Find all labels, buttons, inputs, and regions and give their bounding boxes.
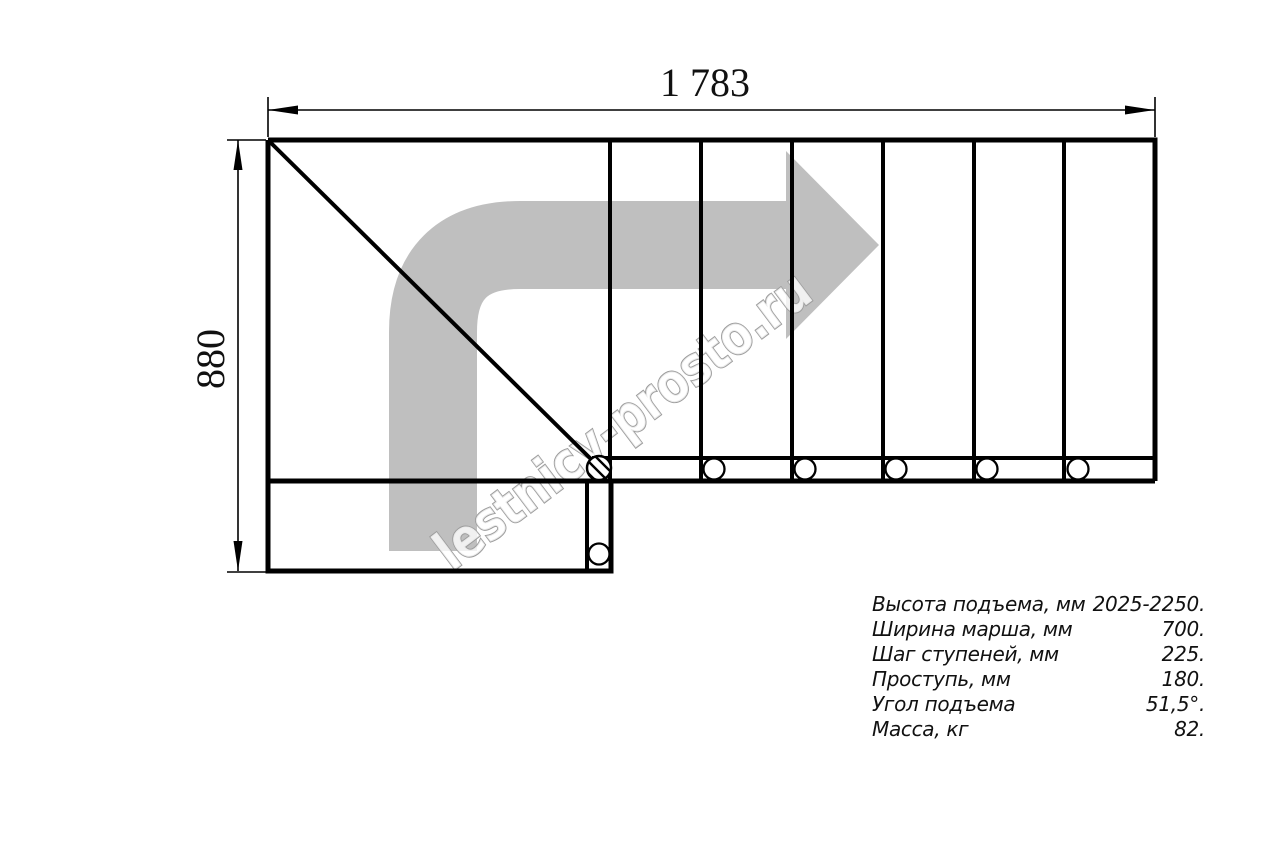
baluster-circle bbox=[886, 459, 907, 480]
specs-table: Высота подъема, мм 2025-2250. Ширина мар… bbox=[872, 592, 1205, 742]
baluster-circle bbox=[589, 544, 610, 565]
spec-row: Проступь, мм 180. bbox=[872, 667, 1205, 692]
spec-label: Высота подъема, мм bbox=[872, 592, 1085, 617]
spec-value: 700. bbox=[1162, 617, 1205, 642]
baluster-circle bbox=[704, 459, 725, 480]
spec-value: 82. bbox=[1174, 717, 1205, 742]
spec-row: Угол подъема 51,5°. bbox=[872, 692, 1205, 717]
baluster-circle bbox=[1068, 459, 1089, 480]
spec-value: 2025-2250. bbox=[1093, 592, 1205, 617]
watermark-text: lestnicy-prosto.ru bbox=[422, 258, 823, 582]
dim-arrow-up-icon bbox=[234, 140, 243, 170]
spec-value: 51,5°. bbox=[1146, 692, 1205, 717]
width-dimension-label: 1 783 bbox=[660, 60, 750, 105]
spec-row: Шаг ступеней, мм 225. bbox=[872, 642, 1205, 667]
spec-row: Ширина марша, мм 700. bbox=[872, 617, 1205, 642]
spec-row: Масса, кг 82. bbox=[872, 717, 1205, 742]
spec-row: Высота подъема, мм 2025-2250. bbox=[872, 592, 1205, 617]
baluster-circle bbox=[795, 459, 816, 480]
spec-label: Проступь, мм bbox=[872, 667, 1011, 692]
staircase-drawing-page: lestnicy-prosto.ru bbox=[0, 0, 1280, 853]
spec-value: 180. bbox=[1162, 667, 1205, 692]
dim-arrow-left-icon bbox=[268, 106, 298, 115]
spec-label: Угол подъема bbox=[872, 692, 1015, 717]
dim-arrow-down-icon bbox=[234, 541, 243, 571]
baluster-circle bbox=[977, 459, 998, 480]
height-dimension-label: 880 bbox=[188, 329, 233, 389]
baluster-group bbox=[589, 459, 1089, 565]
spec-label: Шаг ступеней, мм bbox=[872, 642, 1059, 667]
spec-label: Масса, кг bbox=[872, 717, 968, 742]
spec-value: 225. bbox=[1162, 642, 1205, 667]
dim-arrow-right-icon bbox=[1125, 106, 1155, 115]
spec-label: Ширина марша, мм bbox=[872, 617, 1072, 642]
